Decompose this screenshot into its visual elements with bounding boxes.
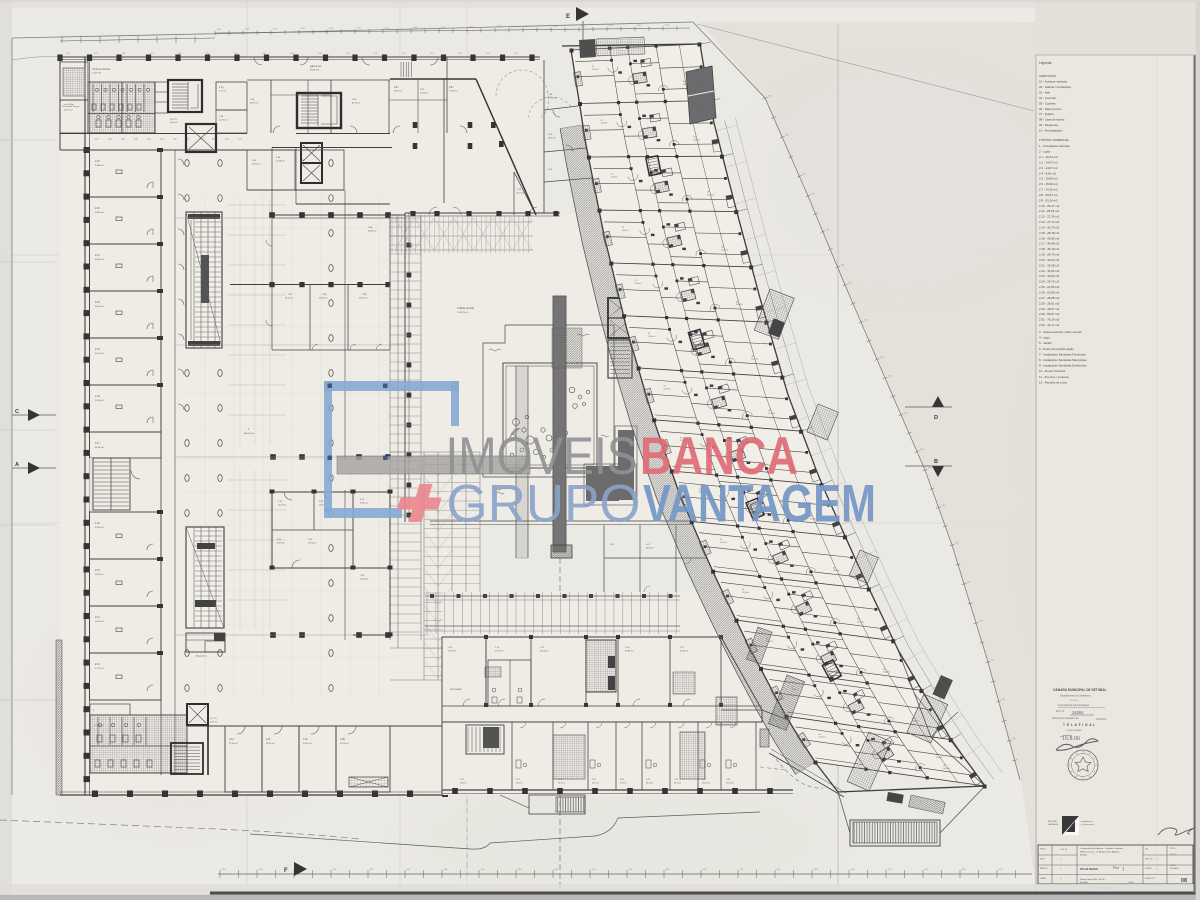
svg-text:VANTAGEM: VANTAGEM	[643, 475, 876, 534]
svg-text:GRUPO: GRUPO	[447, 475, 641, 534]
